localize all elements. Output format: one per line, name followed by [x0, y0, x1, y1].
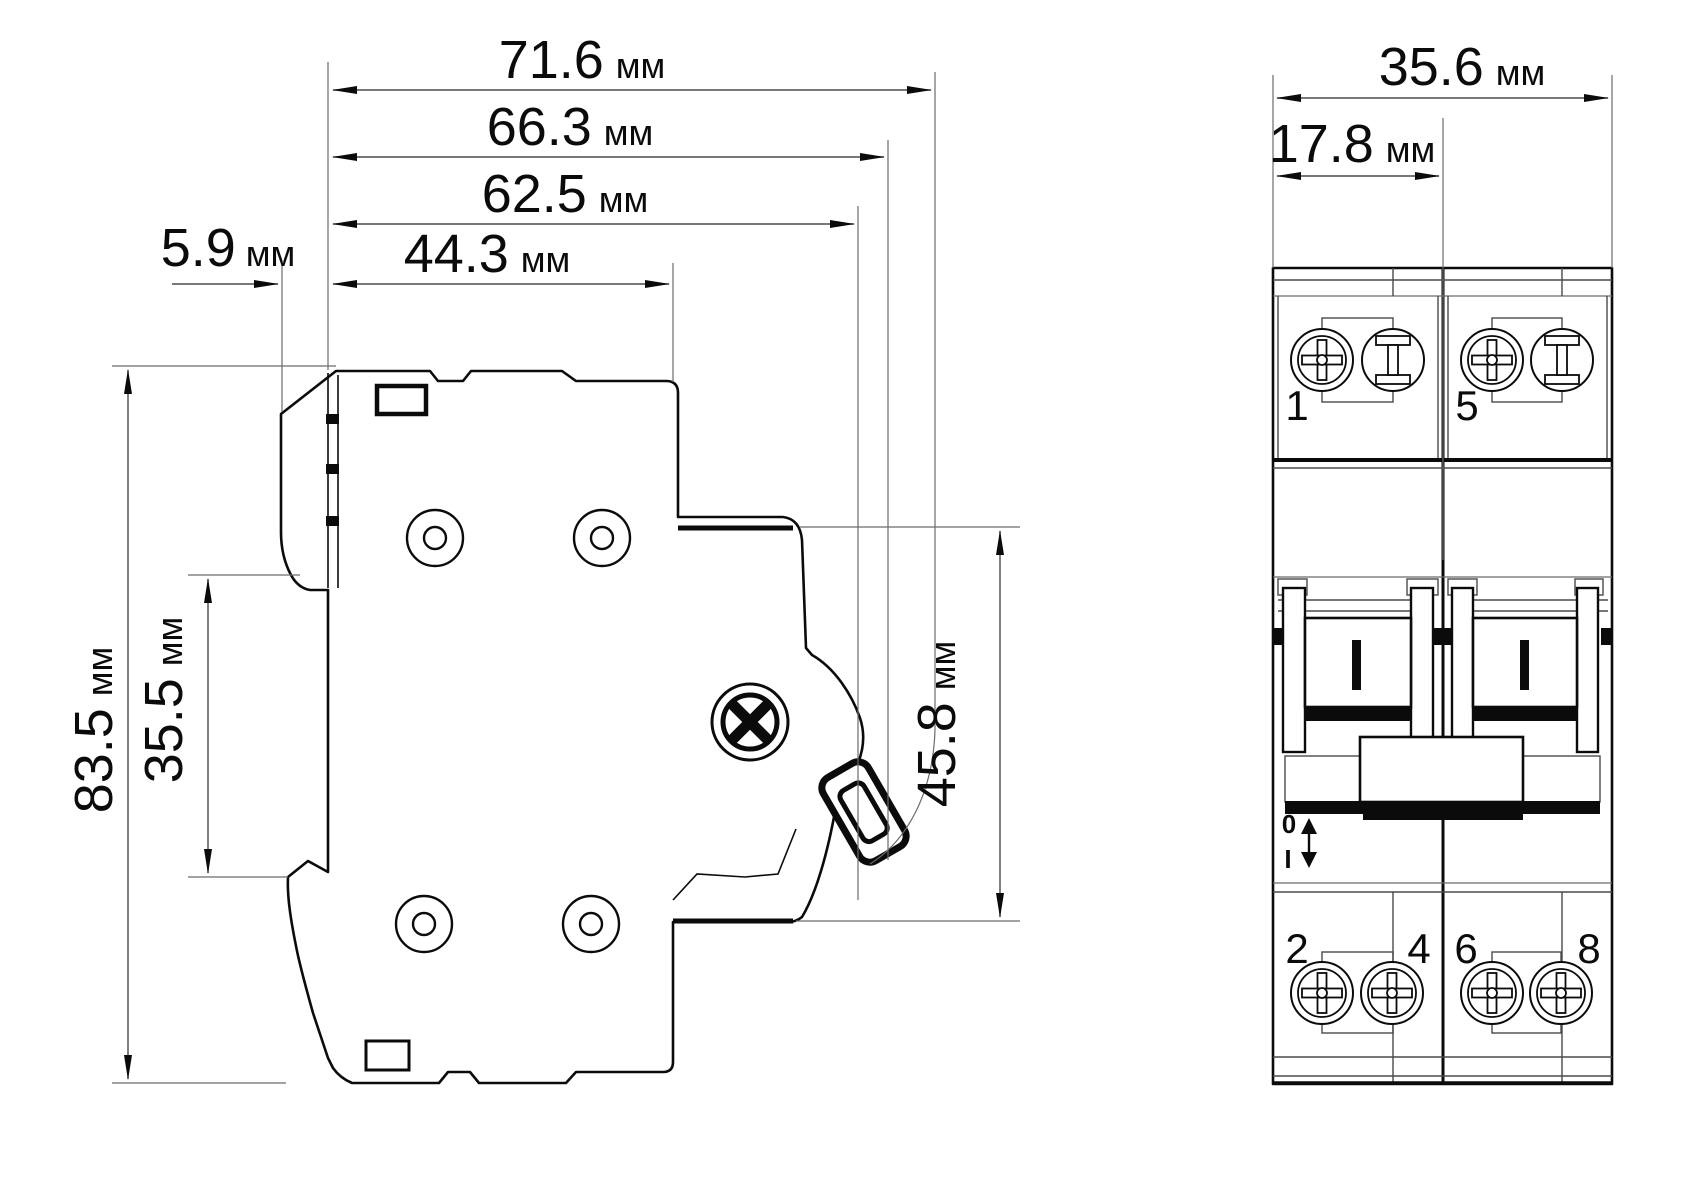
- terminal-label-2: 2: [1285, 925, 1308, 972]
- technical-drawing: 1 5: [0, 0, 1697, 1178]
- rivet-top-left: [407, 510, 463, 566]
- side-view: [281, 371, 911, 1083]
- dim-label-17-8: 17.8мм: [1269, 114, 1436, 174]
- dim-label-35-5: 35.5мм: [134, 617, 194, 784]
- position-label-off: 0: [1282, 809, 1296, 839]
- dim-label-35-6: 35.6мм: [1379, 37, 1546, 97]
- terminal-label-1: 1: [1285, 382, 1308, 429]
- dim-label-66-3: 66.3мм: [487, 97, 654, 157]
- dim-label-5-9: 5.9мм: [161, 218, 296, 278]
- dim-label-62-5: 62.5мм: [482, 164, 649, 224]
- terminal-label-6: 6: [1454, 925, 1477, 972]
- dim-label-45-8: 45.8мм: [907, 641, 967, 808]
- position-mark-on: [1352, 640, 1361, 690]
- bottom-vent-slot: [366, 1041, 409, 1070]
- side-screw-icon: [712, 684, 788, 760]
- dim-label-71-6: 71.6мм: [499, 30, 666, 90]
- terminal-screw-slotted-icon[interactable]: [1531, 329, 1593, 391]
- position-label-on: I: [1284, 844, 1291, 874]
- terminal-screw-slotted-icon[interactable]: [1362, 329, 1424, 391]
- drawing-svg: 1 5: [0, 0, 1697, 1178]
- terminal-label-5: 5: [1455, 382, 1478, 429]
- rivet-bottom-left: [396, 896, 452, 952]
- terminal-label-8: 8: [1577, 925, 1600, 972]
- dim-label-83-5: 83.5мм: [64, 647, 124, 814]
- top-vent-slot: [377, 386, 426, 414]
- rivet-top-right: [574, 510, 630, 566]
- toggle-lever[interactable]: [817, 757, 910, 866]
- dim-label-44-3: 44.3мм: [404, 224, 571, 284]
- position-mark-on: [1520, 640, 1529, 690]
- terminal-label-4: 4: [1407, 925, 1430, 972]
- rivet-bottom-right: [563, 896, 619, 952]
